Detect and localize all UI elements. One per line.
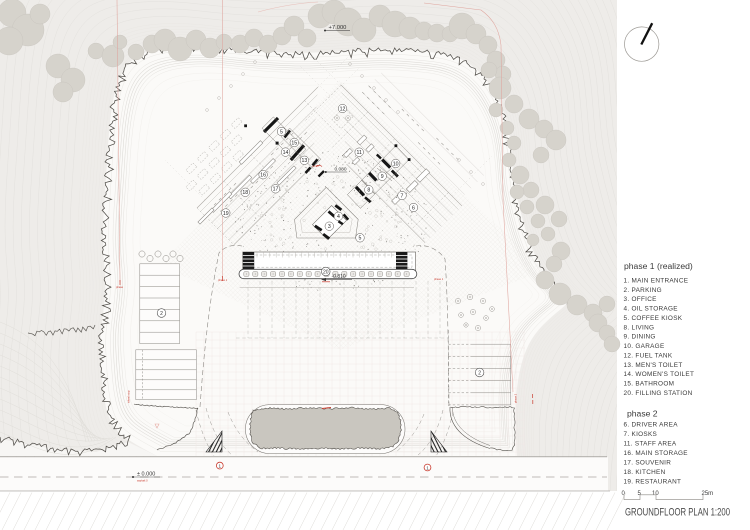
svg-text:+0.08: +0.08: [312, 164, 319, 168]
svg-text:19. RESTAURANT: 19. RESTAURANT: [624, 478, 682, 485]
svg-text:8. LIVING: 8. LIVING: [624, 324, 655, 331]
svg-text:3: 3: [328, 224, 331, 230]
svg-text:20. FILLING STATION: 20. FILLING STATION: [624, 390, 693, 397]
svg-text:phase 2: phase 2: [514, 393, 518, 403]
svg-text:11. STAFF AREA: 11. STAFF AREA: [624, 440, 677, 447]
svg-text:4. OIL STORAGE: 4. OIL STORAGE: [624, 306, 678, 313]
svg-text:15. BATHROOM: 15. BATHROOM: [624, 381, 675, 388]
svg-text:14. WOMEN'S TOILET: 14. WOMEN'S TOILET: [624, 371, 695, 378]
svg-text:+7.000: +7.000: [329, 25, 347, 31]
svg-text:phase 1: phase 1: [434, 277, 444, 281]
svg-text:13. MEN'S TOILET: 13. MEN'S TOILET: [624, 362, 683, 369]
svg-text:7. KIOSKS: 7. KIOSKS: [624, 431, 658, 438]
svg-text:9. DINING: 9. DINING: [624, 334, 656, 341]
svg-text:2: 2: [160, 311, 163, 317]
svg-text:-0.810: -0.810: [332, 274, 346, 280]
svg-text:10: 10: [393, 161, 399, 167]
svg-text:16. MAIN STORAGE: 16. MAIN STORAGE: [624, 450, 688, 457]
svg-text:wheel stop: wheel stop: [127, 390, 131, 403]
svg-text:5: 5: [359, 236, 362, 242]
svg-text:6. DRIVER AREA: 6. DRIVER AREA: [624, 421, 679, 428]
svg-text:5: 5: [638, 491, 642, 497]
svg-text:5: 5: [280, 129, 283, 135]
svg-text:12. FUEL TANK: 12. FUEL TANK: [624, 352, 673, 359]
svg-text:phase: phase: [116, 285, 124, 289]
svg-text:phase 2: phase 2: [627, 409, 658, 419]
svg-text:7: 7: [401, 193, 404, 199]
svg-text:6: 6: [412, 205, 415, 211]
svg-text:18. KITCHEN: 18. KITCHEN: [624, 469, 666, 476]
svg-text:16: 16: [260, 173, 266, 179]
svg-text:1: 1: [219, 464, 222, 469]
svg-text:1. MAIN ENTRANCE: 1. MAIN ENTRANCE: [624, 277, 689, 284]
svg-text:12: 12: [340, 106, 346, 112]
svg-text:8: 8: [367, 188, 370, 194]
svg-text:10. GARAGE: 10. GARAGE: [624, 343, 665, 350]
svg-text:19: 19: [223, 211, 229, 217]
svg-text:3. OFFICE: 3. OFFICE: [624, 296, 657, 303]
svg-text:phase 1: phase 1: [218, 278, 228, 282]
svg-text:GROUNDFLOOR PLAN 1:200: GROUNDFLOOR PLAN 1:200: [625, 506, 730, 518]
svg-text:± 0.000: ± 0.000: [137, 472, 155, 478]
svg-text:17. SOUVENIR: 17. SOUVENIR: [624, 459, 672, 466]
svg-text:phase 1 (realized): phase 1 (realized): [624, 261, 693, 271]
svg-text:2. PARKING: 2. PARKING: [624, 287, 662, 294]
svg-text:17: 17: [273, 187, 279, 193]
svg-text:15: 15: [291, 140, 297, 146]
svg-text:14: 14: [283, 150, 289, 156]
svg-text:5. COFFEE KIOSK: 5. COFFEE KIOSK: [624, 315, 683, 322]
svg-text:20: 20: [323, 270, 329, 276]
svg-text:18: 18: [242, 190, 248, 196]
svg-text:9: 9: [381, 174, 384, 180]
svg-text:10: 10: [652, 491, 659, 497]
svg-text:asphalt 0: asphalt 0: [137, 479, 148, 483]
svg-text:13: 13: [302, 158, 308, 164]
svg-text:1: 1: [426, 465, 429, 470]
svg-text:0.080: 0.080: [335, 167, 347, 173]
svg-text:2: 2: [478, 371, 481, 377]
svg-text:0: 0: [622, 491, 626, 497]
svg-text:11: 11: [357, 150, 362, 156]
svg-text:4: 4: [337, 214, 340, 220]
